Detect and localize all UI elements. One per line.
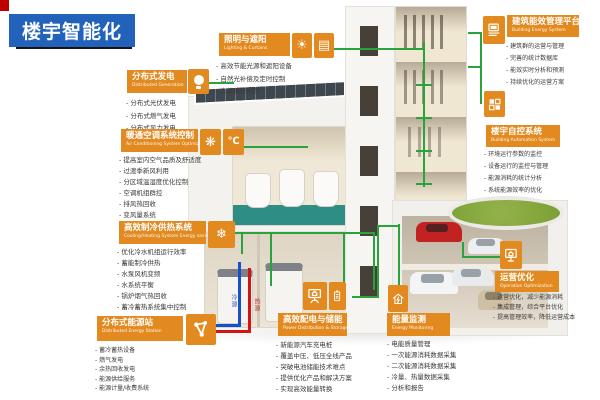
- section-subtitle: Energy Monitoring: [392, 326, 446, 332]
- feature-item: 能源供给服务: [95, 375, 149, 385]
- white-car: [452, 268, 494, 286]
- tower-window: [360, 266, 378, 296]
- connector-line: [468, 32, 482, 34]
- section-subtitle: Distributed Generation: [132, 83, 183, 89]
- tower-window: [360, 26, 378, 56]
- section-subtitle: Distributed Energy Station: [102, 329, 179, 335]
- feature-item: 能效实时分析和预测: [506, 65, 564, 77]
- connector-tick: [416, 183, 432, 185]
- feature-list-optimization: 运营优化，减少能源消耗 集成管理，综合平台优化 提高管理效率，降低运营成本: [493, 293, 575, 323]
- cold-pipe: [214, 324, 241, 327]
- connector-line: [234, 232, 374, 234]
- connector-line: [378, 225, 400, 227]
- feature-item: 能源消耗的统计分析: [484, 173, 548, 185]
- feature-list-monitoring: 电能质量管理 一次能源消耗数据采集 二次能源消耗数据采集 冷量、热量数据采集 分…: [387, 339, 456, 394]
- section-subtitle: Cooling/Heating System Energy saving: [124, 234, 202, 240]
- battery-icon: [329, 282, 346, 310]
- feature-item: 水泵风机变频: [117, 269, 186, 280]
- feature-list-platform: 建筑群的运营与管理 完善的统计数据库 能效实时分析和预测 持续优化的运营方案: [506, 41, 564, 89]
- section-header-power: 高效配电与储能 Power Distribution & Storage: [278, 313, 347, 336]
- cooling-tank: [245, 173, 271, 208]
- feature-item: 提高管理效率，降低运营成本: [493, 313, 575, 323]
- hot-pipe: [214, 330, 251, 333]
- feature-item: 冷量、热量数据采集: [387, 372, 456, 383]
- connector-tick: [416, 150, 432, 152]
- feature-item: 完善的统计数据库: [506, 53, 564, 65]
- red-car: [416, 222, 462, 242]
- connector-line: [333, 48, 425, 50]
- section-header-optimization: 运营优化 Operation Optimization: [495, 271, 559, 292]
- section-subtitle: Operation Optimization: [500, 284, 555, 290]
- feature-item: 锅炉烟气热回收: [117, 291, 186, 302]
- feature-item: 环境运行参数的监控: [484, 149, 548, 161]
- blinds-icon: ▤: [314, 33, 334, 58]
- cold-pipe-label: 冷源: [229, 294, 238, 308]
- connector-tick: [416, 84, 432, 86]
- connector-line: [270, 232, 272, 286]
- connector-line: [462, 256, 502, 258]
- feature-item: 覆盖中压、低压全线产品: [276, 351, 352, 362]
- feature-item: 优化冷水机组运行效率: [117, 247, 186, 258]
- feature-list-power: 新能源汽车充电桩 覆盖中压、低压全线产品 突破电池储能技术难点 提供优化产品和解…: [276, 340, 352, 395]
- feature-item: 排风热回收: [119, 199, 201, 210]
- feature-item: 提高室内空气品质及舒适度: [119, 155, 201, 166]
- machine-room: [232, 126, 349, 226]
- feature-list-cooling: 优化冷水机组运行效率 蓄能制冷供热 水泵风机变频 水系统平衡 锅炉烟气热回收 蓄…: [117, 247, 186, 313]
- feature-item: 一次能源消耗数据采集: [387, 350, 456, 361]
- connector-line: [462, 242, 464, 258]
- feature-item: 高效节能光源和遮阳设备: [216, 60, 292, 73]
- hot-pipe-label: 热源: [252, 298, 261, 312]
- thermometer-icon: ℃: [223, 129, 244, 155]
- section-header-lighting: 照明与遮阳 Lighting & Curtains: [219, 33, 290, 56]
- section-title: 楼宇自控系统: [491, 128, 556, 138]
- feature-item: 变风量系统: [119, 210, 201, 221]
- sun-icon: ☀: [292, 33, 312, 58]
- feature-item: 建筑群的运营与管理: [506, 41, 564, 53]
- feature-item: 实现高效能量转换: [276, 384, 352, 395]
- feature-item: 能源计量/收费系统: [95, 384, 149, 394]
- feature-item: 设备运行的监控与管理: [484, 161, 548, 173]
- feature-item: 电能质量管理: [387, 339, 456, 350]
- energy-meter-icon: [388, 285, 408, 312]
- section-subtitle: Power Distribution & Storage: [283, 326, 343, 332]
- workstation-icon: [483, 16, 505, 44]
- section-title: 分布式发电: [132, 73, 183, 83]
- hot-pipe: [248, 268, 251, 332]
- cooling-tank: [279, 169, 305, 207]
- feature-item: 蓄冷蓄热设备: [95, 346, 149, 356]
- section-header-monitoring: 能量监测 Energy Monitoring: [387, 313, 450, 336]
- fan-icon: ❋: [200, 129, 221, 155]
- section-subtitle: Building Automation System: [491, 138, 556, 144]
- cooling-tank: [313, 171, 339, 207]
- feature-item: 二次能源消耗数据采集: [387, 361, 456, 372]
- feature-item: 系统能源效率的优化: [484, 185, 548, 197]
- feature-item: 提供优化产品和解决方案: [276, 373, 352, 384]
- operation-monitor-icon: [500, 241, 522, 269]
- section-header-station: 分布式能源站 Distributed Energy Station: [97, 316, 183, 341]
- section-header-automation: 楼宇自控系统 Building Automation System: [486, 125, 560, 147]
- feature-item: 余热回收发电: [95, 365, 149, 375]
- feature-item: 分区域温湿度优化控制: [119, 177, 201, 188]
- pipe-network-icon: [186, 314, 216, 345]
- connector-line: [398, 224, 400, 286]
- feature-item: 自然光补偿及定时控制: [216, 73, 292, 86]
- section-subtitle: Lighting & Curtains: [224, 46, 286, 52]
- cold-pipe: [238, 262, 241, 326]
- section-header-cooling: 高效制冷供热系统 Cooling/Heating System Energy s…: [119, 221, 206, 244]
- section-header-platform: 建筑能效管理平台 Building Energy System: [507, 15, 579, 37]
- section-title: 分布式能源站: [102, 319, 179, 329]
- feature-item: 突破电池储能技术难点: [276, 362, 352, 373]
- tower-window: [360, 146, 378, 176]
- feature-item: 新能源汽车充电桩: [276, 340, 352, 351]
- feature-item: 分析和报告: [387, 383, 456, 394]
- transformer-icon: [303, 282, 327, 310]
- connector-line: [377, 225, 379, 297]
- connector-line: [423, 42, 425, 187]
- section-title: 建筑能效管理平台: [512, 18, 575, 28]
- section-subtitle: Building Energy System: [512, 28, 575, 34]
- feature-item: 持续优化的运营方案: [506, 77, 564, 89]
- feature-item: 蓄能制冷供热: [117, 258, 186, 269]
- connector-line: [241, 232, 243, 254]
- white-car: [410, 272, 458, 294]
- building-windows-icon: [484, 91, 505, 117]
- section-title: 照明与遮阳: [224, 36, 286, 46]
- section-title: 运营优化: [500, 274, 555, 284]
- lightbulb-icon: [188, 69, 209, 94]
- connector-line: [373, 232, 375, 290]
- connector-line: [352, 296, 379, 298]
- feature-item: 运营优化，减少能源消耗: [493, 293, 575, 303]
- section-title: 暖通空调系统控制: [126, 132, 194, 142]
- feature-item: 燃气发电: [95, 356, 149, 366]
- building-intelligence-diagram: 冷源 热源 楼宇智能化 分布式发电 Distributed Generation…: [0, 0, 600, 400]
- section-header-generation: 分布式发电 Distributed Generation: [127, 70, 187, 93]
- feature-item: 人体感应控制: [216, 85, 292, 98]
- feature-item: 分布式燃气发电: [126, 110, 176, 123]
- section-title: 高效配电与储能: [283, 316, 343, 326]
- connector-line: [480, 32, 482, 104]
- connector-line: [468, 66, 482, 68]
- feature-list-automation: 环境运行参数的监控 设备运行的监控与管理 能源消耗的统计分析 系统能源效率的优化: [484, 149, 548, 197]
- page-title: 楼宇智能化: [9, 14, 135, 47]
- roof-lawn: [448, 196, 564, 230]
- feature-item: 过渡季新风利用: [119, 166, 201, 177]
- section-subtitle: Air Conditioning System Optimized Contro…: [126, 142, 194, 148]
- feature-list-station: 蓄冷蓄热设备 燃气发电 余热回收发电 能源供给服务 能源计量/收费系统: [95, 346, 149, 394]
- snowflake-icon: ❄: [208, 221, 235, 248]
- feature-list-lighting: 高效节能光源和遮阳设备 自然光补偿及定时控制 人体感应控制: [216, 60, 292, 98]
- corner-accent: [0, 0, 9, 11]
- feature-item: 蓄冷蓄热系统集中控制: [117, 302, 186, 313]
- connector-tick: [416, 117, 432, 119]
- feature-item: 水系统平衡: [117, 280, 186, 291]
- feature-item: 分布式光伏发电: [126, 97, 176, 110]
- section-title: 高效制冷供热系统: [124, 224, 202, 234]
- feature-item: 空调机组群控: [119, 188, 201, 199]
- feature-list-hvac: 提高室内空气品质及舒适度 过渡季新风利用 分区域温湿度优化控制 空调机组群控 排…: [119, 155, 201, 221]
- feature-item: 集成管理，综合平台优化: [493, 303, 575, 313]
- connector-line: [244, 146, 308, 148]
- section-header-hvac: 暖通空调系统控制 Air Conditioning System Optimiz…: [121, 129, 198, 152]
- section-title: 能量监测: [392, 316, 446, 326]
- tower-window: [360, 86, 378, 116]
